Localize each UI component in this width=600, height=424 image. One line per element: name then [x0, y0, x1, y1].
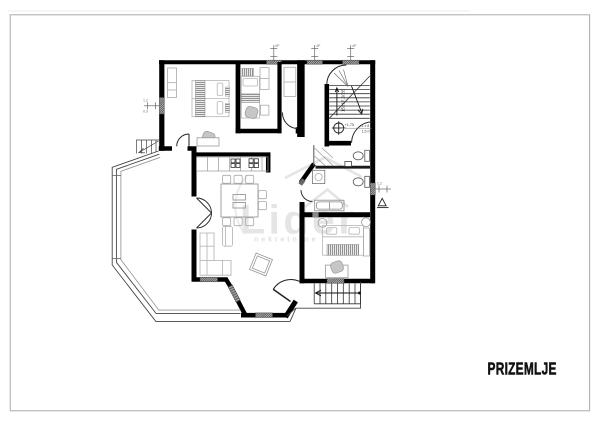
svg-text:1 x 8: 1 x 8 [362, 124, 370, 128]
svg-text:+1,75: +1,75 [345, 123, 355, 127]
svg-text:nekretnine: nekretnine [254, 235, 318, 244]
svg-text:1,5 m: 1,5 m [362, 130, 371, 134]
svg-text:4P: 4P [352, 44, 357, 48]
svg-text:1,2: 1,2 [143, 99, 148, 103]
svg-text:PRIZEMLJE: PRIZEMLJE [488, 359, 557, 379]
svg-text:4P: 4P [275, 44, 280, 48]
svg-text:0,9: 0,9 [143, 110, 148, 114]
svg-text:1,2: 1,2 [377, 182, 382, 186]
svg-text:4P: 4P [316, 44, 321, 48]
svg-text:15x17,6/28: 15x17,6/28 [341, 89, 346, 112]
